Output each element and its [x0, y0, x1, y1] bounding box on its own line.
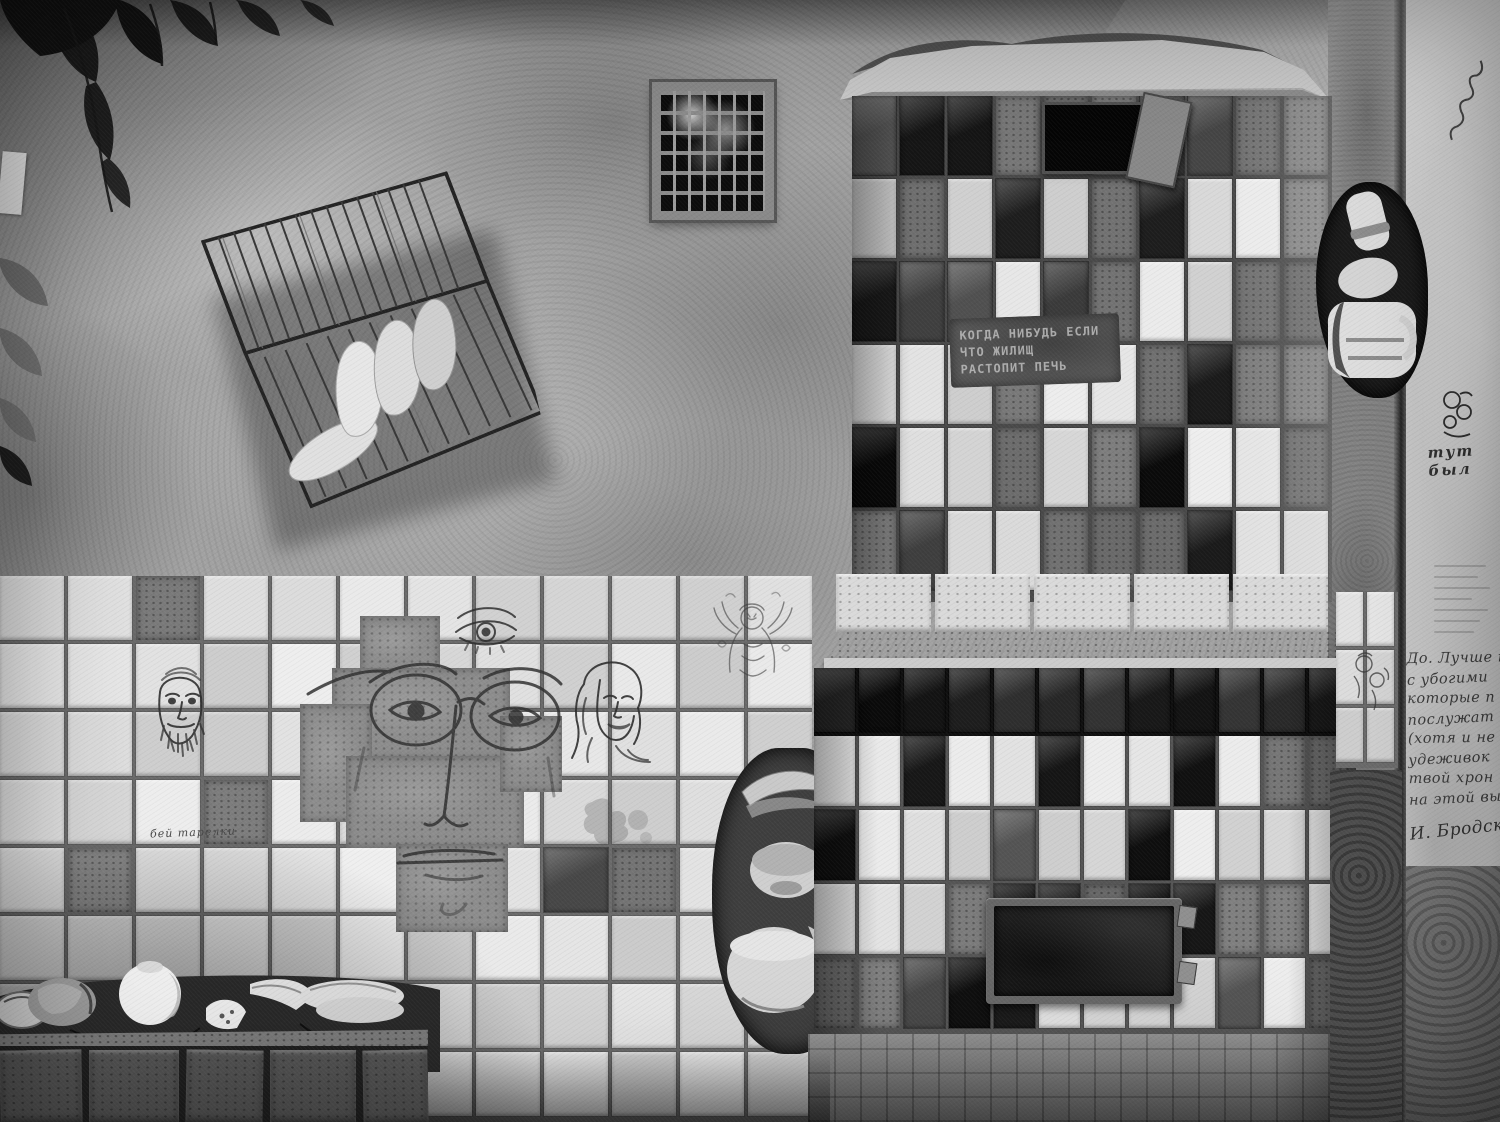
poem-line: послужат — [1407, 705, 1500, 731]
tile — [1188, 428, 1232, 507]
tile — [1367, 592, 1394, 646]
tile — [612, 916, 676, 980]
poem-line: До. Лучше к — [1406, 647, 1500, 669]
tile — [1140, 428, 1184, 507]
stove-stencil-text: КОГДА НИБУДЬ ЕСЛИ ЧТО ЖИЛИЩ РАСТОПИТ ПЕЧ… — [949, 313, 1121, 388]
tile — [1174, 810, 1215, 880]
foliage-top-left — [0, 0, 370, 215]
tile — [1336, 592, 1363, 646]
tile — [1129, 736, 1170, 806]
eye-tile-drawing — [446, 596, 526, 666]
stove-door — [986, 898, 1182, 1004]
graffiti-doodle — [1434, 386, 1480, 444]
tile — [1140, 262, 1184, 341]
tile — [949, 810, 990, 880]
tile — [949, 958, 990, 1028]
tile — [1039, 668, 1080, 732]
tile — [904, 958, 945, 1028]
stove-ledge — [828, 630, 1356, 660]
damaged-tile — [1092, 428, 1136, 507]
tile — [994, 736, 1035, 806]
tile — [1219, 958, 1260, 1028]
tile — [1140, 179, 1184, 258]
stove-cornice — [832, 18, 1337, 102]
tile — [949, 736, 990, 806]
stove-door-hinge — [1177, 961, 1198, 985]
damaged-tile — [949, 884, 990, 954]
graffiti-tut-byl: тут был — [1427, 440, 1500, 480]
tile — [1174, 668, 1215, 732]
tile — [1039, 736, 1080, 806]
tile — [612, 576, 676, 640]
tile — [1188, 345, 1232, 424]
tile — [1044, 428, 1088, 507]
woman-face-tile-drawing — [556, 650, 658, 778]
poem-line: на этой вы — [1409, 785, 1500, 811]
brick — [270, 1050, 356, 1122]
tile — [904, 736, 945, 806]
tile — [1129, 810, 1170, 880]
stove-stone-course — [836, 574, 1328, 632]
brick — [0, 1049, 83, 1122]
tile — [0, 712, 64, 776]
stone-block — [1233, 574, 1328, 632]
damaged-tile — [996, 428, 1040, 507]
tile — [904, 810, 945, 880]
tile — [0, 576, 64, 640]
stone-block — [1034, 574, 1129, 632]
tile — [948, 179, 992, 258]
tile — [996, 179, 1040, 258]
stone-block — [1134, 574, 1229, 632]
tile — [1188, 96, 1232, 175]
tile — [204, 576, 268, 640]
damaged-tile — [136, 576, 200, 640]
brick — [362, 1049, 429, 1122]
tile — [1219, 810, 1260, 880]
doodle-on-side-tile — [1344, 646, 1394, 716]
planter-brick-front — [0, 1046, 428, 1122]
damaged-tile — [1092, 179, 1136, 258]
tile — [1219, 736, 1260, 806]
tile — [904, 884, 945, 954]
vent-grille — [652, 82, 774, 220]
stove-dark-tile-row — [814, 668, 1356, 736]
broken-teapot-in-niche — [1316, 182, 1428, 398]
tile — [1084, 810, 1125, 880]
poem-line: удеживок — [1408, 745, 1500, 771]
angel-tile-drawing — [702, 584, 804, 692]
damaged-tile — [1219, 884, 1260, 954]
tile — [1039, 810, 1080, 880]
tile — [948, 428, 992, 507]
tile — [68, 576, 132, 640]
bearded-face-tile-drawing — [138, 662, 222, 762]
brick — [89, 1050, 179, 1122]
tile — [1174, 736, 1215, 806]
photo-scene: бей тарелки — [0, 0, 1500, 1122]
tile — [1336, 708, 1363, 762]
tile — [1084, 668, 1125, 732]
pencil-scribbles — [1434, 556, 1492, 642]
tile — [68, 712, 132, 776]
stove-upper-left-shading — [852, 96, 910, 602]
tile — [1044, 179, 1088, 258]
tile — [948, 96, 992, 175]
stove-door-hinge — [1177, 905, 1198, 929]
stone-block — [935, 574, 1030, 632]
brick — [185, 1049, 263, 1122]
tile — [994, 668, 1035, 732]
poem-handwriting: До. Лучше к с убогими которые п послужат… — [1406, 647, 1500, 839]
rough-plaster-below-patch — [1330, 770, 1402, 1122]
tile — [612, 984, 676, 1048]
poem-line: с убогими — [1406, 665, 1500, 691]
stone-block — [836, 574, 931, 632]
side-wall-rough-base — [1406, 866, 1500, 1122]
tile — [1367, 708, 1394, 762]
tile — [1188, 179, 1232, 258]
stove-lower-left-shading — [814, 668, 878, 1034]
tile — [1084, 736, 1125, 806]
tile — [994, 810, 1035, 880]
damaged-tile — [1140, 345, 1184, 424]
tile — [1219, 668, 1260, 732]
tile — [904, 668, 945, 732]
foliage-left-edge — [0, 238, 80, 498]
tile — [1129, 668, 1170, 732]
tile — [949, 668, 990, 732]
tile — [1188, 262, 1232, 341]
tile — [0, 644, 64, 708]
damaged-tile — [996, 96, 1040, 175]
stove-door-panel — [994, 906, 1174, 996]
ink-blot-tile-drawing — [570, 790, 666, 858]
tile — [68, 644, 132, 708]
